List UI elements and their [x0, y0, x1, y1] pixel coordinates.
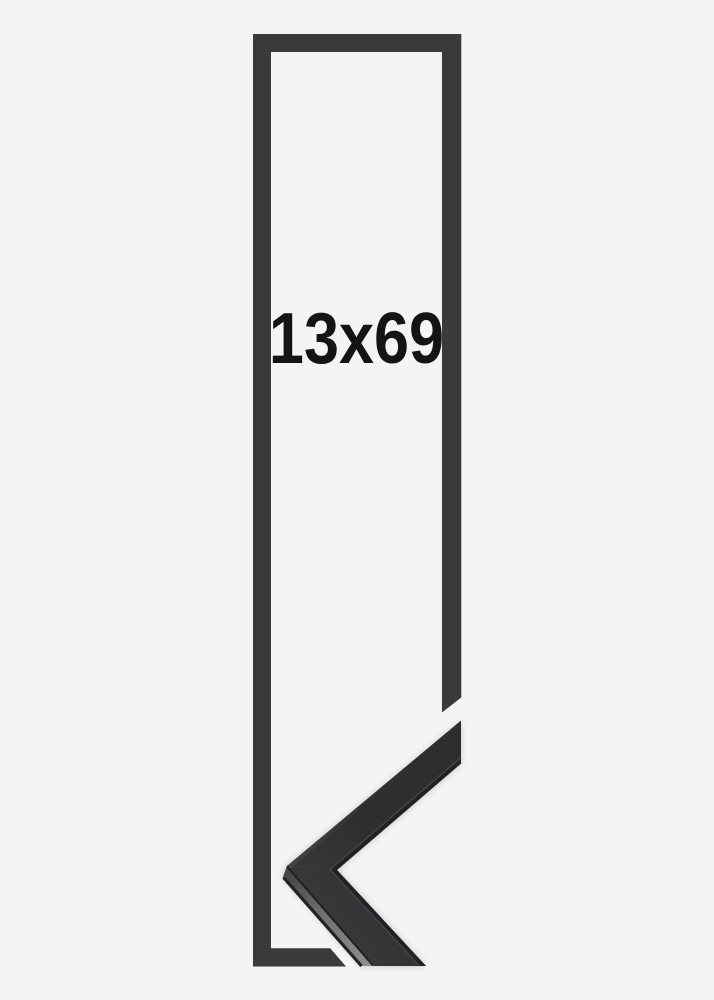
- svg-text:13x69: 13x69: [269, 299, 444, 379]
